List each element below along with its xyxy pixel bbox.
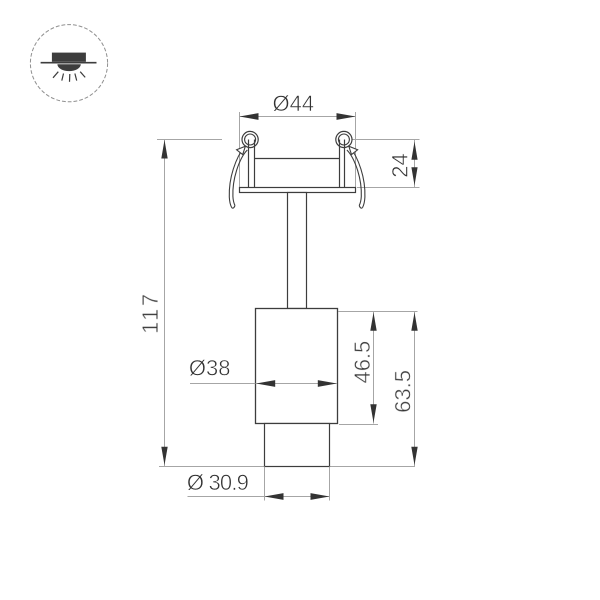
svg-text:24: 24	[388, 153, 413, 177]
svg-text:Ø38: Ø38	[189, 356, 231, 381]
svg-text:46.5: 46.5	[350, 341, 375, 384]
svg-text:Ø 30.9: Ø 30.9	[187, 470, 249, 495]
svg-text:Ø44: Ø44	[273, 91, 315, 116]
svg-text:117: 117	[138, 291, 163, 334]
svg-text:63.5: 63.5	[390, 370, 415, 413]
